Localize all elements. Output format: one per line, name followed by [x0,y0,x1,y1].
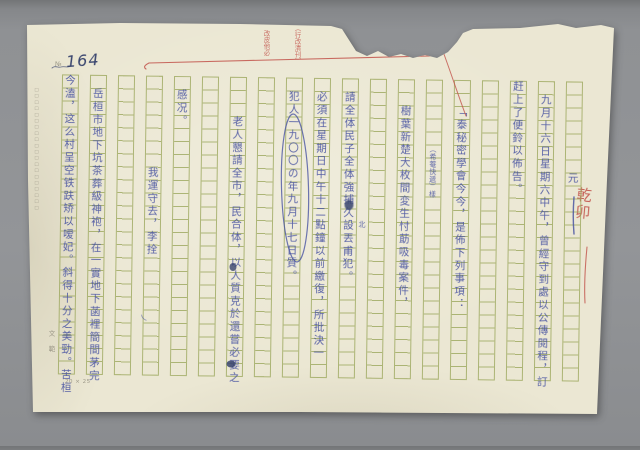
grid-column [198,76,219,376]
paper-shadow: □□□□□□□□□□□□□□□□□□□□ 文範 20 × 25 № 164 改皮… [0,0,640,446]
interlinear-insert: （希菴快遞）樣 [427,146,437,199]
manuscript-column: 岳桓市地下坑茶葬級神袍，在一實地下菡裡簡間茅完 [85,88,107,383]
grid-column [562,81,583,381]
grid-column [478,80,499,380]
grid-column [366,79,387,379]
manuscript-column: 我運守去，李拴 [143,167,162,257]
manuscript-column: 犯人一九〇〇の年九月十七日質。 [282,91,303,283]
grid-column [254,77,275,377]
manuscript-column: 赶上了便鈴以佈告。 [507,81,527,196]
manuscript-column: 今溘，这么村呈空铁趺矫以嗳妃。斜得十分之美勁。苦桓 [57,74,79,394]
manuscript-column: 元 [564,172,582,185]
grid-column [114,75,135,375]
grid-and-handwriting-layer: 元九月十六日星期六中午，曾經守到處以公傳閱程，訂赶上了便鈴以佈告。「泰秘密學會今… [0,0,640,450]
manuscript-column: 請全体民子全体強捕久設丟甫犯。 [338,91,359,283]
scanned-manuscript-screenshot: { "document_type": "handwritten manuscri… [0,0,640,446]
manuscript-column: 必須在星期日中午十二點鐘以前繳復，所批決一 [309,91,331,360]
grid-column [422,79,443,379]
manuscript-column: 九月十六日星期六中午，曾經守到處以公傳閱程，訂 [533,94,555,389]
manuscript-column: 老人懇請全市，民合体，以人質克於還嘗必要之 [225,116,247,385]
manuscript-column: 「泰秘密學會今今，是佈下列事項： [450,106,471,311]
interlinear-insert: 北 [357,221,366,229]
interlinear-insert: 乀 [139,313,148,321]
manuscript-paper: □□□□□□□□□□□□□□□□□□□□ 文範 20 × 25 № 164 改皮… [0,0,640,446]
manuscript-column: 樹葉新楚大枚間変生忖莇吸毒案件， [394,105,415,310]
scanner-background: □□□□□□□□□□□□□□□□□□□□ 文範 20 × 25 № 164 改皮… [0,0,640,446]
manuscript-column: 感况。 [172,89,191,128]
